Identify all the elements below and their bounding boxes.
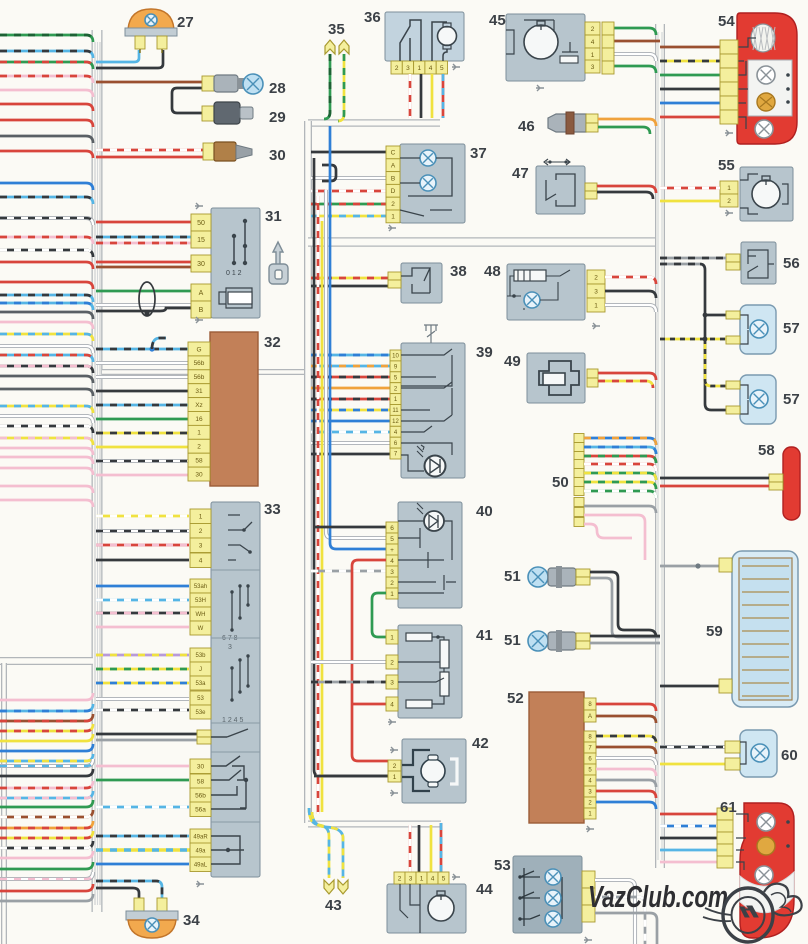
svg-text:59: 59 bbox=[706, 623, 723, 640]
svg-text:49a: 49a bbox=[195, 848, 206, 854]
svg-text:52: 52 bbox=[507, 690, 524, 707]
svg-text:53: 53 bbox=[197, 696, 204, 702]
svg-text:G: G bbox=[196, 346, 201, 353]
svg-text:53H: 53H bbox=[195, 598, 206, 604]
svg-text:30: 30 bbox=[269, 147, 286, 164]
svg-text:6: 6 bbox=[390, 525, 394, 532]
svg-text:5: 5 bbox=[440, 65, 444, 72]
svg-text:47: 47 bbox=[512, 165, 529, 182]
svg-text:2: 2 bbox=[393, 763, 397, 770]
svg-text:D: D bbox=[391, 188, 396, 195]
svg-text:56b: 56b bbox=[195, 793, 206, 800]
svg-text:4: 4 bbox=[390, 701, 394, 708]
svg-text:44: 44 bbox=[476, 881, 493, 898]
svg-text:1: 1 bbox=[417, 65, 421, 72]
svg-text:56: 56 bbox=[783, 255, 800, 272]
svg-text:35: 35 bbox=[328, 21, 345, 38]
svg-text:4: 4 bbox=[429, 65, 433, 72]
svg-text:2: 2 bbox=[390, 580, 394, 587]
svg-text:2: 2 bbox=[591, 26, 595, 33]
svg-text:56b: 56b bbox=[194, 374, 205, 381]
svg-text:3: 3 bbox=[409, 875, 413, 882]
svg-text:4: 4 bbox=[199, 558, 203, 565]
svg-text:1: 1 bbox=[391, 214, 395, 221]
svg-text:53a: 53a bbox=[195, 681, 206, 687]
svg-text:1: 1 bbox=[390, 591, 394, 598]
svg-text:0 1 2: 0 1 2 bbox=[226, 270, 242, 277]
svg-text:54: 54 bbox=[718, 13, 735, 30]
svg-text:58: 58 bbox=[195, 457, 203, 464]
svg-text:2: 2 bbox=[197, 444, 201, 451]
svg-text:58: 58 bbox=[758, 442, 775, 459]
svg-text:50: 50 bbox=[197, 220, 205, 227]
svg-text:49aL: 49aL bbox=[194, 862, 208, 868]
svg-text:31: 31 bbox=[195, 388, 203, 395]
svg-text:31: 31 bbox=[265, 208, 282, 225]
svg-text:1: 1 bbox=[727, 185, 731, 192]
svg-text:41: 41 bbox=[476, 627, 493, 644]
svg-text:W: W bbox=[198, 626, 204, 632]
svg-text:53e: 53e bbox=[195, 710, 206, 716]
svg-text:57: 57 bbox=[783, 320, 800, 337]
svg-text:39: 39 bbox=[476, 344, 493, 361]
svg-text:49aR: 49aR bbox=[193, 834, 208, 840]
svg-text:1: 1 bbox=[197, 430, 201, 437]
svg-text:46: 46 bbox=[518, 118, 535, 135]
svg-text:38: 38 bbox=[450, 263, 467, 280]
svg-text:60: 60 bbox=[781, 747, 798, 764]
svg-text:1: 1 bbox=[591, 52, 595, 59]
svg-text:2: 2 bbox=[390, 659, 394, 666]
svg-text:1: 1 bbox=[199, 514, 203, 521]
svg-text:A: A bbox=[391, 163, 396, 170]
svg-text:2: 2 bbox=[199, 528, 203, 535]
svg-text:28: 28 bbox=[269, 80, 286, 97]
svg-text:A: A bbox=[588, 714, 592, 720]
svg-text:1: 1 bbox=[390, 634, 394, 641]
svg-text:27: 27 bbox=[177, 14, 194, 31]
svg-text:3: 3 bbox=[390, 569, 394, 576]
svg-text:33: 33 bbox=[264, 501, 281, 518]
svg-text:37: 37 bbox=[470, 145, 487, 162]
svg-text:4: 4 bbox=[591, 39, 595, 46]
svg-text:2: 2 bbox=[395, 65, 399, 72]
svg-text:1: 1 bbox=[594, 302, 598, 309]
svg-text:49: 49 bbox=[504, 353, 521, 370]
svg-text:48: 48 bbox=[484, 263, 501, 280]
svg-text:5: 5 bbox=[442, 875, 446, 882]
svg-text:10: 10 bbox=[392, 354, 399, 360]
svg-text:29: 29 bbox=[269, 109, 286, 126]
svg-text:4: 4 bbox=[431, 875, 435, 882]
svg-text:32: 32 bbox=[264, 334, 281, 351]
svg-text:11: 11 bbox=[392, 408, 399, 414]
svg-text:3: 3 bbox=[591, 64, 595, 71]
svg-text:61: 61 bbox=[720, 799, 737, 816]
svg-text:56b: 56b bbox=[194, 360, 205, 367]
svg-text:51: 51 bbox=[504, 632, 521, 649]
svg-text:30: 30 bbox=[197, 764, 205, 771]
svg-text:55: 55 bbox=[718, 157, 735, 174]
svg-text:4: 4 bbox=[390, 558, 394, 565]
svg-text:B: B bbox=[199, 307, 204, 314]
svg-text:5: 5 bbox=[390, 536, 394, 543]
svg-text:C: C bbox=[391, 150, 396, 157]
svg-text:51: 51 bbox=[504, 568, 521, 585]
svg-text:3: 3 bbox=[228, 644, 232, 651]
svg-text:53: 53 bbox=[494, 857, 511, 874]
svg-text:50: 50 bbox=[552, 474, 569, 491]
svg-text:A: A bbox=[199, 290, 204, 297]
svg-text:30: 30 bbox=[197, 261, 205, 268]
svg-text:57: 57 bbox=[783, 391, 800, 408]
svg-text:J: J bbox=[199, 667, 202, 673]
svg-text:30: 30 bbox=[195, 471, 203, 478]
svg-text:36: 36 bbox=[364, 9, 381, 26]
svg-text:53ah: 53ah bbox=[194, 584, 207, 590]
svg-text:43: 43 bbox=[325, 897, 342, 914]
svg-text:40: 40 bbox=[476, 503, 493, 520]
svg-text:58: 58 bbox=[197, 779, 205, 786]
svg-text:15: 15 bbox=[197, 237, 205, 244]
svg-text:12: 12 bbox=[392, 419, 399, 425]
svg-text:+: + bbox=[390, 547, 394, 554]
svg-text:53b: 53b bbox=[195, 653, 206, 659]
svg-text:3: 3 bbox=[406, 65, 410, 72]
svg-text:2: 2 bbox=[727, 198, 731, 205]
svg-text:1: 1 bbox=[393, 774, 397, 781]
svg-text:56a: 56a bbox=[195, 807, 206, 814]
svg-text:2: 2 bbox=[398, 875, 402, 882]
svg-text:45: 45 bbox=[489, 12, 506, 29]
svg-text:1: 1 bbox=[420, 875, 424, 882]
svg-text:2: 2 bbox=[391, 201, 395, 208]
svg-text:2: 2 bbox=[594, 274, 598, 281]
svg-text:42: 42 bbox=[472, 735, 489, 752]
svg-text:3: 3 bbox=[390, 679, 394, 686]
svg-text:3: 3 bbox=[199, 543, 203, 550]
svg-text:16: 16 bbox=[195, 416, 203, 423]
svg-text:Xz: Xz bbox=[195, 402, 203, 409]
svg-text:WH: WH bbox=[196, 612, 206, 618]
svg-text:3: 3 bbox=[594, 288, 598, 295]
svg-text:34: 34 bbox=[183, 912, 200, 929]
svg-text:B: B bbox=[391, 175, 395, 182]
